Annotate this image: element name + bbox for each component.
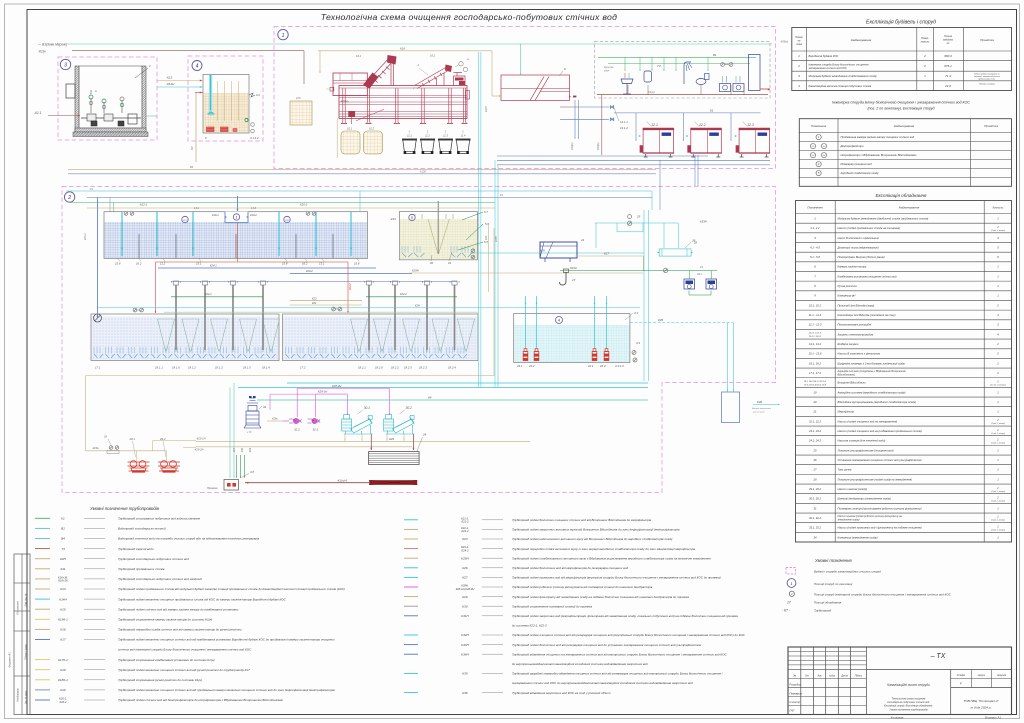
svg-text:Трубопровід господарсько-побут: Трубопровід господарсько-побутових стічн… <box>118 577 202 581</box>
svg-text:В1: В1 <box>61 527 65 531</box>
svg-text:18.2.6: 18.2.6 <box>375 366 383 370</box>
svg-text:Трубопровід подачі біологічних: Трубопровід подачі біологічних вод від м… <box>512 566 628 570</box>
svg-text:26: 26 <box>813 458 817 462</box>
svg-text:будівельними з'єдн.: будівельними з'єдн. <box>978 78 996 81</box>
svg-text:К24-1: К24-1 <box>210 264 217 268</box>
svg-text:Експлікація будівель і споруд: Експлікація будівель і споруд <box>866 20 936 26</box>
svg-text:28: 28 <box>693 241 698 245</box>
svg-text:4.1 4.2: 4.1 4.2 <box>250 136 259 140</box>
svg-text:Насосна станція (для технічної: Насосна станція (для технічної води) <box>838 439 886 443</box>
svg-text:(1 роб., 1 резерв): (1 роб., 1 резерв) <box>991 230 1005 232</box>
svg-text:К29: К29 <box>249 447 252 452</box>
svg-text:– ТХ: – ТХ <box>930 653 946 660</box>
svg-text:К34Н: К34Н <box>461 652 469 656</box>
svg-text:28: 28 <box>103 435 107 439</box>
svg-text:Дата: Дата <box>840 675 848 678</box>
svg-text:господарсько-побутових стічних: господарсько-побутових стічних вод. <box>887 701 930 704</box>
svg-text:Інженерна споруда Блоку біолог: Інженерна споруда Блоку біологічного очи… <box>832 101 970 105</box>
svg-text:Трубопровід спорожнення ручної: Трубопровід спорожнення ручної решітки д… <box>118 678 202 682</box>
svg-text:Каналізаційні очисні споруди: Каналізаційні очисні споруди <box>887 683 930 687</box>
svg-text:16.1: 16.1 <box>356 54 362 58</box>
svg-text:Насоси (подачі промивних вод і: Насоси (подачі промивних вод і флокулянт… <box>838 526 922 530</box>
svg-text:12.3: 12.3 <box>747 123 754 127</box>
svg-text:13.1.1: 13.1.1 <box>620 120 628 124</box>
svg-text:32.2: 32.2 <box>294 428 300 432</box>
svg-text:-К14Н: -К14Н <box>166 82 175 86</box>
svg-text:25: 25 <box>636 215 641 219</box>
svg-text:Насос В комплекті з фекальним: Насос В комплекті з фекальним <box>838 236 879 240</box>
svg-text:ГАП: ГАП <box>790 709 795 713</box>
svg-text:б4: б4 <box>428 396 432 400</box>
svg-text:Технологічна схема очищення го: Технологічна схема очищення господарсько… <box>321 12 618 22</box>
svg-text:17.1, 17.2: 17.1, 17.2 <box>809 371 821 375</box>
svg-text:19: 19 <box>814 390 817 394</box>
svg-text:-К1(н: -К1(н <box>38 50 46 54</box>
svg-text:1: 1 <box>282 33 285 39</box>
svg-text:К15: К15 <box>296 96 301 100</box>
svg-text:24: 24 <box>422 433 427 437</box>
svg-text:24.1: 24.1 <box>696 273 702 276</box>
svg-text:Мікрофільтр: Мікрофільтр <box>838 410 855 414</box>
svg-text:Н.контр.: Н.контр. <box>790 700 801 704</box>
svg-text:24.0: 24.0 <box>944 84 951 88</box>
svg-text:Стадія: Стадія <box>957 674 966 677</box>
svg-text:10.2: 10.2 <box>369 127 375 131</box>
svg-text:71.4: 71.4 <box>945 74 951 78</box>
svg-text:К28-2Н: К28-2Н <box>332 384 342 388</box>
svg-text:Пісковловлювачі ротаційні: Пісковловлювачі ротаційні <box>838 323 872 327</box>
svg-text:22.1: 22.1 <box>587 364 594 368</box>
svg-text:Т3: Т3 <box>657 64 661 68</box>
svg-text:К36: К36 <box>757 400 762 404</box>
svg-text:Компресор (зневоднення осаду): Компресор (зневоднення осаду) <box>838 535 878 539</box>
svg-text:Копійовував: Копійовував <box>17 688 20 702</box>
svg-text:18.1.6: 18.1.6 <box>172 366 180 370</box>
svg-text:до системи К22-1, К22-2: до системи К22-1, К22-2 <box>512 624 547 628</box>
svg-text:В1: В1 <box>713 53 717 57</box>
svg-text:Приямок: Приямок <box>207 486 218 490</box>
svg-text:2-4: 2-4 <box>822 154 826 157</box>
svg-text:2: 2 <box>923 54 926 58</box>
svg-text:4.3 4.4: 4.3 4.4 <box>615 364 624 368</box>
svg-text:кімн: кімн <box>604 69 610 73</box>
svg-text:-К7(н)-: -К7(н)- <box>340 99 349 103</box>
svg-text:Формат А1: Формат А1 <box>985 716 1002 720</box>
svg-text:К25Н: К25Н <box>495 236 498 242</box>
svg-text:15.8: 15.8 <box>115 262 121 266</box>
svg-text:Локальне ультрафіолетове (пода: Локальне ультрафіолетове (подачі осаду н… <box>837 477 913 481</box>
svg-text:Примітка: Примітка <box>980 38 994 42</box>
svg-text:3.2: 3.2 <box>256 93 260 97</box>
svg-text:Випуск зворотних: Випуск зворотних <box>752 408 772 410</box>
svg-text:К28-1Н,К28-2Н: К28-1Н,К28-2Н <box>456 587 475 591</box>
svg-text:(поз. 2 по генплану). Експліка: (поз. 2 по генплану). Експлікація споруд <box>867 107 934 111</box>
svg-text:Повітродувки Вихрові (Зодчих р: Повітродувки Вихрові (Зодчих рівнів) <box>838 255 885 259</box>
svg-text:Аркушів: Аркушів <box>996 674 1007 677</box>
svg-text:К1б+2б: К1б+2б <box>58 579 68 583</box>
svg-text:К26: К26 <box>540 249 545 253</box>
svg-text:К16: К16 <box>60 628 66 632</box>
svg-text:Формат А1: Формат А1 <box>8 652 12 668</box>
svg-text:Водопровід технічної води на п: Водопровід технічної води на потреби очи… <box>118 537 260 541</box>
svg-text:до внутрішньомайданчикової кан: до внутрішньомайданчикової каналізаційно… <box>512 662 648 666</box>
svg-text:К18: К18 <box>60 668 66 672</box>
svg-text:Зм: Зм <box>793 675 796 678</box>
svg-text:Виробнича будівля КОС: Виробнича будівля КОС <box>809 54 839 58</box>
svg-text:23.1: 23.1 <box>516 364 523 368</box>
svg-text:18.2.3: 18.2.3 <box>419 366 427 370</box>
svg-text:Комбінована установка очищення: Комбінована установка очищення стічних в… <box>838 274 897 278</box>
svg-text:вод на скид: вод на скид <box>753 411 765 414</box>
svg-text:Каналізаційна насосна станція: Каналізаційна насосна станція побутових … <box>809 84 872 88</box>
svg-text:К21: К21 <box>312 301 317 305</box>
svg-text:(1 роб., 1 резерв): (1 роб., 1 резерв) <box>991 433 1005 435</box>
svg-text:Трубопровід приймальних стоків: Трубопровід приймальних стоків <box>118 567 165 571</box>
svg-text:К35: К35 <box>462 672 468 676</box>
svg-text:(2 з бок. з затвора): (2 з бок. з затвора) <box>990 384 1006 386</box>
svg-text:3: 3 <box>64 63 67 69</box>
svg-text:18.2.1-18.2.4) 18.3, 18.4: 18.2.1-18.2.4) 18.3, 18.4 <box>804 383 827 386</box>
svg-text:Трубопровід подачі надлишковог: Трубопровід подачі надлишкового активног… <box>512 537 673 541</box>
svg-text:Позиції обладнання: Позиції обладнання <box>814 601 842 605</box>
svg-text:(1 роб., 1 резерв): (1 роб., 1 резерв) <box>991 500 1005 502</box>
svg-text:13.2.1, 13.2.2: 13.2.1, 13.2.2 <box>809 336 822 338</box>
svg-text:32.1, 32.2: 32.1, 32.2 <box>809 516 821 520</box>
svg-text:К23: К23 <box>485 235 488 240</box>
svg-text:-К13: -К13 <box>166 76 172 80</box>
svg-text:К25Н: К25Н <box>461 556 469 560</box>
svg-text:К36: К36 <box>462 691 468 695</box>
svg-text:Трубопровід подачі стічних вод: Трубопровід подачі стічних вод від камер… <box>118 607 239 611</box>
svg-text:Компресор рН: Компресор рН <box>838 294 856 298</box>
svg-text:Насоси В комплекті з фекальним: Насоси В комплекті з фекальним <box>838 352 881 356</box>
svg-text:30.2: 30.2 <box>406 406 412 410</box>
svg-text:Трубопровід подачі механічно о: Трубопровід подачі механічно очищених пр… <box>118 597 287 601</box>
svg-text:Трубопровід подачі механічно о: Трубопровід подачі механічно очищених ст… <box>118 638 335 642</box>
svg-text:21: 21 <box>580 238 585 242</box>
svg-text:Полімерна станція (приготуванн: Полімерна станція (приготування робочого… <box>838 506 922 510</box>
svg-text:Шуфрядні конвеєри з 2-ма блока: Шуфрядні конвеєри з 2-ма блоками конденс… <box>838 361 906 365</box>
svg-text:Позиції споруд по генплану: Позиції споруд по генплану <box>814 582 853 586</box>
svg-text:К24-2: К24-2 <box>462 548 469 552</box>
svg-text:Модульна будівля зневоднення (: Модульна будівля зневоднення (двоблочні)… <box>838 216 929 220</box>
svg-text:15.8: 15.8 <box>354 262 360 266</box>
svg-text:К20-2: К20-2 <box>60 700 67 704</box>
svg-text:Трубопровід подачі біологічних: Трубопровід подачі біологічних вод від р… <box>512 643 701 647</box>
svg-text:Трубопровід подачі фільтрату в: Трубопровід подачі фільтрату від зневодн… <box>512 595 689 599</box>
svg-text:— В1(Зовн.Мережі): — В1(Зовн.Мережі) <box>37 43 67 47</box>
svg-text:(1 роб., 1 резерв): (1 роб., 1 резерв) <box>991 491 1005 493</box>
svg-text:Приймальна камера гасіння напо: Приймальна камера гасіння напору очищени… <box>841 135 915 139</box>
svg-text:К22-2: К22-2 <box>462 529 469 533</box>
svg-text:Насоси (подачі очищених вод на: Насоси (подачі очищених вод на розбавлен… <box>838 429 922 433</box>
svg-text:К25Н: К25Н <box>412 269 420 273</box>
svg-text:Вторинні Відстійники: Вторинні Відстійники <box>838 381 867 385</box>
svg-text:К23: К23 <box>312 296 317 300</box>
svg-text:Відстійниками): Відстійниками) <box>838 374 856 377</box>
svg-text:Модульна будівля зневоднення с: Модульна будівля зневоднення стабілізова… <box>809 74 878 78</box>
svg-text:Таль ручна: Таль ручна <box>838 468 852 472</box>
svg-text:К20-2: К20-2 <box>306 269 313 273</box>
svg-text:3.3: 3.3 <box>636 341 640 345</box>
svg-text:29.1, 29.2: 29.1, 29.2 <box>808 487 821 491</box>
svg-text:№док: №док <box>829 675 836 678</box>
svg-text:Трубопровід подачі біологічно: Трубопровід подачі біологічно очищених с… <box>512 518 652 522</box>
svg-text:Аераційна система (аеробного с: Аераційна система (аеробного стабілізато… <box>837 390 906 394</box>
svg-text:знезараження стічних вод КОС д: знезараження стічних вод КОС до внутрішн… <box>511 681 693 685</box>
svg-text:24.1, 24.2: 24.1, 24.2 <box>808 439 821 443</box>
svg-text:К1: К1 <box>710 109 714 113</box>
svg-text:Трубопровід переробки подачі а: Трубопровід переробки подачі активного м… <box>512 547 695 551</box>
svg-text:21: 21 <box>813 410 817 414</box>
svg-text:Засувка з електроприводом: Засувка з електроприводом <box>838 332 874 336</box>
svg-text:К23: К23 <box>462 537 468 541</box>
svg-text:4: 4 <box>558 319 560 323</box>
svg-text:33.1, 33.2: 33.1, 33.2 <box>809 526 821 530</box>
svg-text:(1 роб., 1 резерв): (1 роб., 1 резерв) <box>991 423 1005 425</box>
svg-text:20: 20 <box>813 400 817 404</box>
svg-text:Контейнери для Відходів (покла: Контейнери для Відходів (покладний на сі… <box>838 313 896 317</box>
svg-text:К14Н: К14Н <box>59 597 67 601</box>
svg-text:К30: К30 <box>462 604 468 608</box>
svg-text:-К1.1: -К1.1 <box>34 111 42 115</box>
svg-text:К29: К29 <box>389 437 394 441</box>
svg-text:Трубопровід подачі зворотних в: Трубопровід подачі зворотних вод (мікроф… <box>512 614 738 618</box>
svg-text:К1(н): К1(н) <box>648 90 655 94</box>
svg-text:11.4: 11.4 <box>461 134 466 138</box>
svg-text:Трубопровід відведення зворотн: Трубопровід відведення зворотних вод КОС… <box>512 691 611 695</box>
svg-text:Трубопровід подачі робочого ро: Трубопровід подачі робочого розчину флок… <box>512 585 653 589</box>
svg-text:К32Н: К32Н <box>461 633 469 637</box>
svg-text:Шнекові дегідратори (зневоднен: Шнекові дегідратори (зневоднення осаду) <box>838 497 891 501</box>
svg-text:28: 28 <box>813 477 817 481</box>
svg-text:К15б-1: К15б-1 <box>58 618 68 622</box>
svg-text:Трубопровід спорожнення комбін: Трубопровід спорожнення комбінованої уст… <box>118 658 215 662</box>
svg-text:К20-2: К20-2 <box>300 203 308 207</box>
svg-text:К33Н: К33Н <box>700 220 708 224</box>
svg-text:Примітка: Примітка <box>984 124 998 128</box>
svg-text:К17: К17 <box>60 638 66 642</box>
svg-text:Позиції споруд інженерної спор: Позиції споруд інженерної споруди Блоку … <box>814 593 952 597</box>
svg-text:К31Н: К31Н <box>570 266 578 270</box>
svg-text:16.1, 16.2: 16.1, 16.2 <box>809 361 821 365</box>
svg-text:К2Н: К2Н <box>415 304 420 308</box>
svg-text:13.1.2: 13.1.2 <box>620 126 628 130</box>
svg-text:5: 5 <box>411 216 413 220</box>
svg-text:К12Н: К12Н <box>485 106 488 112</box>
svg-text:18.1, 18.2 (18.1.1-18.1.4,: 18.1, 18.2 (18.1.1-18.1.4, <box>804 380 827 383</box>
svg-text:Експлікації споруд. Експлікаці: Експлікації споруд. Експлікація обладнан… <box>884 705 933 708</box>
svg-text:14.1, 14.2: 14.1, 14.2 <box>809 342 821 346</box>
svg-text:27: 27 <box>571 278 576 282</box>
svg-text:Перевірив: Перевірив <box>790 692 803 696</box>
svg-text:Підземна споруда: Підземна споруда <box>979 82 995 85</box>
svg-text:К16: К16 <box>400 46 405 50</box>
svg-text:30.1, 30.2: 30.1, 30.2 <box>809 497 821 501</box>
svg-text:Пристрій для Відходів (жиру): Пристрій для Відходів (жиру) <box>838 303 875 307</box>
svg-text:4.1 - 4.5: 4.1 - 4.5 <box>810 245 820 249</box>
svg-text:-К1(н)-б: -К1(н)-б <box>337 478 347 482</box>
svg-text:Камера гасіння напору: Камера гасіння напору <box>838 265 867 269</box>
svg-text:31: 31 <box>814 506 817 510</box>
svg-text:К27: К27 <box>233 447 236 452</box>
svg-text:31: 31 <box>263 405 267 409</box>
svg-text:К19-1: К19-1 <box>212 213 219 217</box>
svg-text:Трубопровід переробки осадів с: Трубопровід переробки осадів стічних вод… <box>118 628 242 632</box>
svg-text:-К26н: -К26н <box>92 446 99 450</box>
svg-text:К12Н: К12Н <box>420 170 426 174</box>
svg-text:К26: К26 <box>462 566 468 570</box>
svg-text:Трубопровід подачі зворотних а: Трубопровід подачі зворотних активних му… <box>512 528 680 532</box>
svg-text:18.1.1: 18.1.1 <box>155 366 163 370</box>
svg-text:Технологічна схема очищення: Технологічна схема очищення <box>892 698 926 701</box>
svg-text:3.8: 3.8 <box>250 470 254 474</box>
svg-text:11.2: 11.2 <box>425 134 430 138</box>
svg-text:18.2.5: 18.2.5 <box>404 366 412 370</box>
svg-text:К22-1: К22-1 <box>205 292 212 296</box>
svg-text:К1: К1 <box>61 517 65 521</box>
svg-text:Трубопровід подачі приймальних: Трубопровід подачі приймальних стоків ві… <box>118 587 345 591</box>
svg-text:В4: В4 <box>61 537 65 541</box>
svg-text:5.7: 5.7 <box>484 210 488 214</box>
svg-text:Експлікація обладнання: Експлікація обладнання <box>875 193 927 198</box>
svg-text:В4: В4 <box>190 165 194 169</box>
svg-text:Трубопровід подачі стабілізова: Трубопровід подачі стабілізованого актив… <box>512 556 711 560</box>
svg-text:17.2: 17.2 <box>300 366 306 370</box>
svg-text:К17б-1: К17б-1 <box>58 658 68 662</box>
svg-text:Трубопровід гарячої води: Трубопровід гарячої води <box>118 547 154 551</box>
svg-text:2-1: 2-1 <box>811 146 815 148</box>
svg-text:(1 роб., 1 резерв): (1 роб., 1 резерв) <box>991 442 1005 444</box>
svg-text:11.1: 11.1 <box>407 134 412 138</box>
svg-text:18.2.4: 18.2.4 <box>448 366 456 370</box>
svg-text:К33Н: К33Н <box>461 643 469 647</box>
svg-text:Позначення: Позначення <box>807 206 823 210</box>
svg-text:34: 34 <box>814 535 817 539</box>
svg-text:Аеробний стабілізатор осаду: Аеробний стабілізатор осаду <box>840 171 880 175</box>
svg-text:Трубопровід подачі очищених ст: Трубопровід подачі очищених стічних вод … <box>512 633 746 637</box>
svg-text:Трубопровід: Трубопровід <box>814 609 831 613</box>
svg-text:Найменування: Найменування <box>894 124 915 128</box>
svg-text:Локальне ультрафіолетове (очищ: Локальне ультрафіолетове (очищення вод) <box>837 448 894 452</box>
svg-text:Насоси шнекові (осаду): Насоси шнекові (осаду) <box>838 487 868 491</box>
svg-text:К24-2: К24-2 <box>348 283 352 290</box>
svg-text:22.1, 22.2: 22.1, 22.2 <box>808 419 821 423</box>
svg-text:3.4: 3.4 <box>634 311 638 315</box>
svg-text:23.1, 23.2: 23.1, 23.2 <box>808 429 821 433</box>
svg-text:18.1.3: 18.1.3 <box>215 366 223 370</box>
svg-text:Трубопровід спорожнення поліме: Трубопровід спорожнення полімерної станц… <box>512 604 592 608</box>
svg-text:К31Н: К31Н <box>461 614 469 618</box>
svg-text:В4: В4 <box>190 146 194 150</box>
svg-text:зневоднення осаду): зневоднення осаду) <box>837 519 860 522</box>
svg-text:Дозатори писку (відрізнювальні: Дозатори писку (відрізнювальні) <box>837 245 879 249</box>
svg-text:29.1: 29.1 <box>129 437 136 441</box>
svg-text:12.1 - 12.3: 12.1 - 12.3 <box>809 323 822 327</box>
svg-text:18.2.1: 18.2.1 <box>358 366 366 370</box>
svg-text:Будівлі і споруди каналізаційн: Будівлі і споруди каналізаційних очисних… <box>814 570 881 574</box>
svg-text:-К24: -К24 <box>390 217 396 221</box>
svg-text:Денітрифікатори: Денітрифікатори <box>840 144 864 148</box>
svg-text:К22-1: К22-1 <box>140 203 148 207</box>
svg-text:2: 2 <box>797 64 800 68</box>
svg-text:18.1.5: 18.1.5 <box>243 366 251 370</box>
svg-text:Трубопровід подачі стічних вод: Трубопровід подачі стічних вод від деніт… <box>118 698 284 702</box>
svg-text:Підпис і дата: Підпис і дата <box>25 644 28 660</box>
svg-text:Трубопровід подачі промивних в: Трубопровід подачі промивних вод від мік… <box>512 576 721 580</box>
svg-text:Трубопровід відведення очищени: Трубопровід відведення очищених та знеза… <box>512 652 727 656</box>
svg-text:К22-2: К22-2 <box>400 292 407 296</box>
svg-text:18.2.2: 18.2.2 <box>391 366 399 370</box>
svg-text:ховість: ховість <box>920 41 930 44</box>
svg-text:Трубопровід господарсько-побут: Трубопровід господарсько-побутових стічн… <box>118 557 189 561</box>
svg-text:2-2: 2-2 <box>822 146 826 148</box>
svg-text:Посилання: Посилання <box>16 601 20 615</box>
svg-text:Насоси (подачі приймальних сто: Насоси (подачі приймальних стоків на очи… <box>838 226 901 230</box>
svg-text:12.2: 12.2 <box>699 123 706 127</box>
svg-text:Підпис: Підпис <box>855 675 863 678</box>
svg-text:16.2: 16.2 <box>430 54 436 58</box>
svg-text:К19-2: К19-2 <box>250 213 257 217</box>
svg-text:- К7 -: - К7 - <box>782 609 791 613</box>
svg-text:К27: К27 <box>604 252 609 256</box>
svg-text:Найменування: Найменування <box>899 206 920 210</box>
svg-text:15.1 - 15.6: 15.1 - 15.6 <box>809 352 822 356</box>
svg-text:К10(н): К10(н) <box>570 142 574 150</box>
svg-text:11.3: 11.3 <box>443 134 448 138</box>
svg-text:м²: м² <box>947 42 950 45</box>
svg-text:К27: К27 <box>462 576 468 580</box>
svg-text:Арк: Арк <box>816 675 822 678</box>
svg-text:Трубопровід подачі механічно о: Трубопровід подачі механічно очищених ст… <box>118 668 250 672</box>
svg-text:К28-1Н: К28-1Н <box>318 390 328 394</box>
svg-text:-К25-1Н: -К25-1Н <box>196 437 206 441</box>
svg-text:5.1 - 5.8: 5.1 - 5.8 <box>810 255 820 259</box>
svg-text:К9Н: К9Н <box>60 557 67 561</box>
svg-text:13.1.1, 13.1.2,: 13.1.1, 13.1.2, <box>809 333 822 335</box>
svg-text:32.1: 32.1 <box>313 428 319 432</box>
svg-text:27: 27 <box>813 468 817 472</box>
svg-text:м: м <box>95 90 97 93</box>
svg-text:К21-2: К21-2 <box>462 520 469 524</box>
svg-text:876.1: 876.1 <box>944 64 952 68</box>
svg-text:30.1: 30.1 <box>364 406 370 410</box>
svg-text:Копіював: Копіював <box>891 716 904 720</box>
svg-text:18.1.2: 18.1.2 <box>188 366 196 370</box>
svg-text:Установка знезараження очищени: Установка знезараження очищених стічних … <box>838 458 922 462</box>
svg-text:Трубопровід стискуваних побуто: Трубопровід стискуваних побутових вод во… <box>118 517 200 521</box>
svg-text:10.1: 10.1 <box>347 127 353 131</box>
svg-text:К11: К11 <box>60 567 65 571</box>
svg-text:17.1: 17.1 <box>95 366 101 370</box>
svg-text:Найменування: Найменування <box>851 38 872 42</box>
svg-text:К30: К30 <box>241 447 244 452</box>
svg-text:22.3: 22.3 <box>599 364 606 368</box>
svg-text:К35: К35 <box>658 318 663 322</box>
svg-text:Р: Р <box>960 682 962 686</box>
svg-text:Інв. № ориг.: Інв. № ориг. <box>25 690 28 704</box>
svg-text:К20-1: К20-1 <box>83 233 87 240</box>
svg-text:23.2: 23.2 <box>528 364 535 368</box>
svg-text:Трубопровід подачі механічно о: Трубопровід подачі механічно очищених ст… <box>118 688 335 692</box>
svg-text:м. Київ 2024 р.: м. Київ 2024 р. <box>971 706 992 710</box>
svg-text:Умовні позначення трубопроводі: Умовні позначення трубопроводів <box>90 506 160 511</box>
svg-text:К1б(н): К1б(н) <box>596 142 600 150</box>
svg-text:11.1 - 11.4: 11.1 - 11.4 <box>809 313 822 317</box>
svg-text:1: 1 <box>790 581 792 586</box>
svg-text:стічних вод інженерної споруди: стічних вод інженерної споруди Блоку біо… <box>118 648 252 652</box>
svg-text:-К25-2Н: -К25-2Н <box>194 448 204 452</box>
